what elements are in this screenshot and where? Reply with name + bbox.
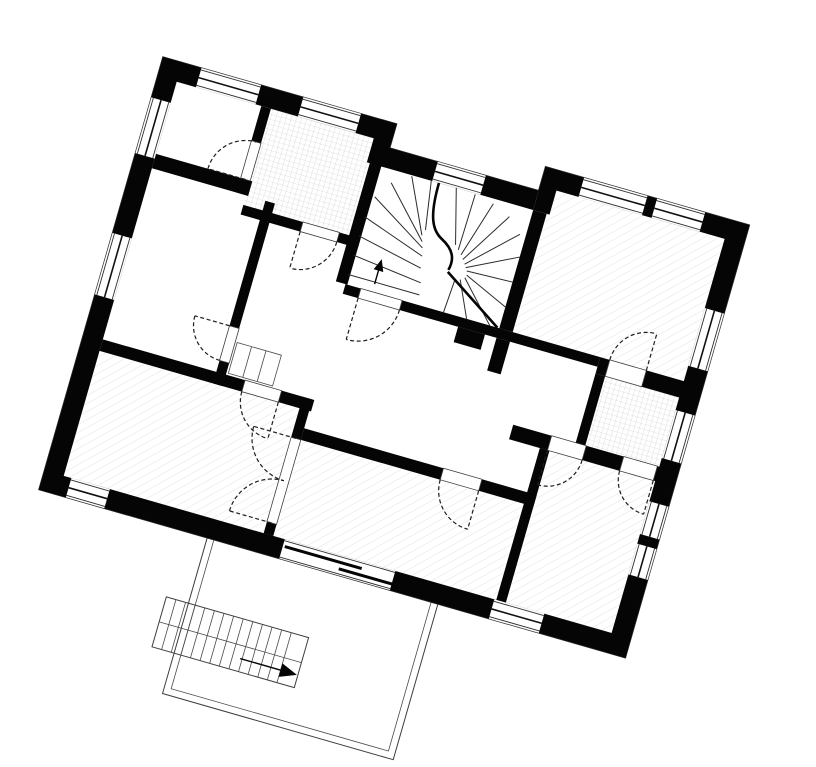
window-nw-left xyxy=(135,97,170,158)
window-west-room xyxy=(95,233,132,300)
rotated-plan xyxy=(0,57,749,767)
wall-west-room-east-a xyxy=(230,201,275,329)
wall-se-room-north-a xyxy=(509,425,552,450)
stair-direction-line xyxy=(240,659,282,671)
wall-nw-room-south xyxy=(152,154,252,196)
stair-up-arrow xyxy=(374,258,387,272)
wall-hall-north-a xyxy=(343,284,361,298)
wall-hall-arm-stub xyxy=(487,338,510,375)
window-nw-top xyxy=(196,68,261,104)
window-stair-bay xyxy=(432,162,486,195)
floor-plan-page: Floor plan drawing Black-and-white archi… xyxy=(0,0,816,767)
stair-center-wall xyxy=(417,183,472,270)
floor-plan-svg: Black-and-white architectural floor plan… xyxy=(0,0,816,767)
stair-up-arrow-stem xyxy=(375,269,379,284)
